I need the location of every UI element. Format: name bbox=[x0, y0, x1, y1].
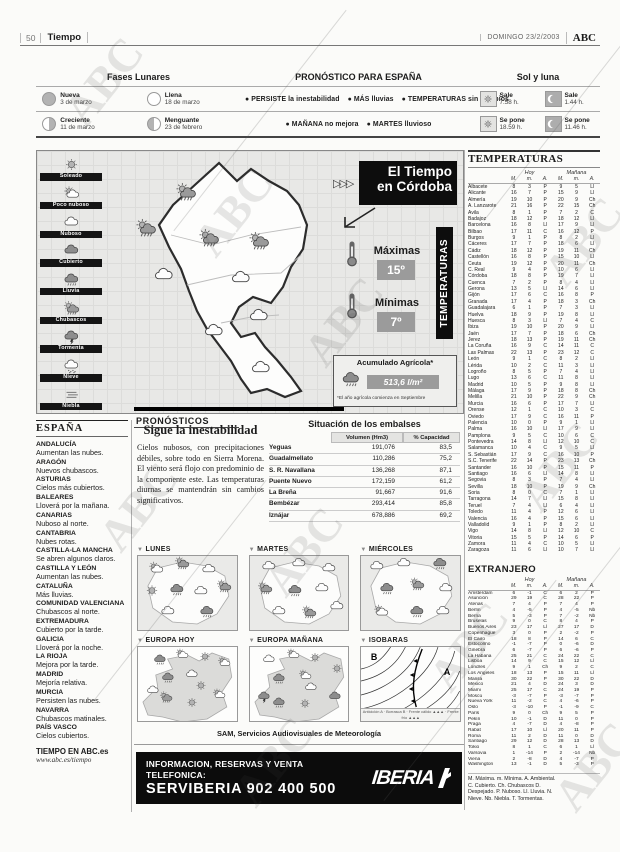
region-forecast: MURCIAPersisten las nubes. bbox=[36, 689, 128, 705]
map-title-line1: El Tiempo bbox=[364, 164, 452, 179]
mini-map: ▼ EUROPA MAÑANA bbox=[249, 637, 350, 722]
temp-row: Zaragoza116Ll107Ll bbox=[468, 547, 600, 553]
espana-title: ESPAÑA bbox=[36, 420, 128, 437]
acumulado-value: 513,6 l/m² bbox=[367, 375, 439, 389]
cloud-icon bbox=[201, 562, 217, 578]
weather-icon bbox=[291, 555, 307, 576]
weather-icon bbox=[257, 580, 273, 601]
m-new-icon bbox=[42, 92, 56, 106]
shower-icon bbox=[175, 182, 197, 204]
weather-legend: SoleadoPoco nubosoNubosoCubiertoLluviaCh… bbox=[40, 152, 102, 410]
region-forecast: CASTILLA-LA MANCHASe abren algunos claro… bbox=[36, 547, 128, 563]
mini-map-label: ▼ EUROPA MAÑANA bbox=[249, 637, 350, 644]
section-title: Tiempo bbox=[41, 32, 88, 43]
svg-text:A: A bbox=[444, 667, 451, 677]
sun-icon bbox=[482, 118, 494, 130]
sun-cloud-icon bbox=[148, 560, 164, 576]
ad-line1: INFORMACION, RESERVAS Y VENTA TELEFONICA… bbox=[146, 759, 362, 781]
espana-forecast-column: ESPAÑA ANDALUCÍAAumentan las nubes.ARAGÓ… bbox=[36, 420, 128, 764]
article-title: Sigue la inestabilidad bbox=[137, 424, 264, 437]
region-forecast: ARAGÓNNuevos chubascos. bbox=[36, 459, 128, 475]
region-forecast: GALICIALloverá por la noche. bbox=[36, 636, 128, 652]
weather-icon bbox=[153, 652, 167, 671]
foreign-temps-table: Amsterdam6-1C62PAsunción2919C2822PAtenas… bbox=[468, 591, 600, 768]
rain-icon bbox=[341, 369, 361, 389]
region-forecast: ANDALUCÍAAumentan las nubes. bbox=[36, 441, 128, 457]
weather-icon bbox=[185, 695, 199, 714]
embalse-row: Guadalmellato110,28675,2 bbox=[269, 454, 460, 465]
minimas-value: 7º bbox=[377, 312, 415, 332]
region-forecast: PAÍS VASCOCielos cubiertos. bbox=[36, 724, 128, 740]
cloud-icon bbox=[435, 603, 451, 619]
shower-icon bbox=[301, 605, 317, 621]
forecast-title: PRONÓSTICO PARA ESPAÑA bbox=[241, 72, 476, 82]
temperatures-column: TEMPERATURAS Hoy Mañana M.m.A.M.m.A. Alb… bbox=[468, 150, 600, 802]
moon-icon bbox=[545, 91, 562, 107]
weather-icon bbox=[298, 697, 312, 716]
iberia-logo: IBERIA bbox=[372, 767, 452, 790]
sun-icon bbox=[144, 583, 160, 599]
temperaturas-side-tab: TEMPERATURAS bbox=[436, 227, 453, 339]
cloud-icon bbox=[160, 603, 176, 619]
weather-icon bbox=[212, 688, 226, 707]
region-forecast: NAVARRAChubascos matinales. bbox=[36, 707, 128, 723]
moonset-icon bbox=[546, 117, 560, 131]
embalse-row: Puente Nuevo172,15961,2 bbox=[269, 477, 460, 488]
map-weather-icon bbox=[175, 182, 197, 209]
forecast-bullet: ● MÁS lluvias bbox=[348, 96, 394, 103]
map-weather-icon bbox=[135, 218, 157, 245]
cordoba-province-map bbox=[101, 155, 337, 405]
rain-icon bbox=[272, 695, 286, 709]
moon-phase: Creciente11 de marzo bbox=[42, 117, 130, 131]
mini-map-label: ▼ MIÉRCOLES bbox=[360, 546, 461, 553]
fog-icon bbox=[63, 386, 80, 403]
weather-icon bbox=[161, 670, 175, 689]
sun-cloud-icon bbox=[217, 655, 231, 669]
map-title-line2: en Córdoba bbox=[364, 179, 452, 194]
region-forecast: CATALUÑAMás lluvias. bbox=[36, 583, 128, 599]
moon-icon bbox=[545, 116, 562, 132]
weather-icon bbox=[216, 578, 232, 599]
legend-line: M. Máxima. m. Mínima. A. Ambiental. bbox=[468, 776, 600, 783]
map-weather-icon bbox=[153, 265, 175, 292]
region-forecast: EXTREMADURACubierto por la tarde. bbox=[36, 618, 128, 634]
weather-icon bbox=[193, 584, 209, 605]
sun-icon bbox=[482, 93, 494, 105]
weather-icon bbox=[262, 652, 276, 671]
forecast-bullet: ● PERSISTE la inestabilidad bbox=[245, 96, 340, 103]
weather-icon bbox=[308, 651, 322, 670]
embalses-header: Volumen (Hm3) % Capacidad bbox=[269, 432, 460, 443]
weather-icon bbox=[272, 672, 286, 691]
shower-icon bbox=[198, 228, 220, 250]
weather-icon bbox=[328, 689, 342, 708]
region-forecast: BALEARESLloverá por la mañana. bbox=[36, 494, 128, 510]
weather-icon bbox=[379, 580, 395, 601]
mini-map-canvas bbox=[137, 646, 238, 722]
acumulado-title: Acumulado Agrícola* bbox=[337, 358, 453, 367]
cloud-dark-icon bbox=[63, 242, 80, 259]
legend-line: Nieve. Nb. Niebla. T. Tormentas. bbox=[468, 796, 600, 803]
weather-icon bbox=[261, 558, 277, 579]
shower-icon bbox=[174, 556, 190, 572]
rain-icon bbox=[169, 581, 185, 597]
map-weather-icon bbox=[250, 358, 272, 385]
mini-map: ▼ MARTES bbox=[249, 546, 350, 631]
cloud-icon bbox=[396, 555, 412, 571]
weather-icon bbox=[217, 655, 231, 674]
legend-item: Nuboso bbox=[40, 209, 102, 238]
map-weather-icon bbox=[230, 268, 252, 295]
snow-icon bbox=[63, 357, 80, 374]
page-number: 50 bbox=[20, 33, 41, 43]
sun-icon bbox=[298, 697, 312, 711]
sun-icon bbox=[194, 679, 208, 693]
sun-icon bbox=[198, 649, 212, 663]
sun-moon-entry: Sale1.44 h. bbox=[545, 91, 597, 107]
mini-map-canvas bbox=[360, 555, 461, 631]
national-temps-table: Albacete83P95LlAlicante167P159LlAlmería1… bbox=[468, 184, 600, 554]
isobars-label: ▼ ISOBARAS bbox=[360, 637, 461, 644]
lunar-title: Fases Lunares bbox=[36, 72, 241, 82]
three-day-maps: ▼ LUNES▼ MARTES▼ MIÉRCOLES bbox=[137, 546, 461, 631]
map-weather-icon bbox=[198, 228, 220, 255]
embalses-title: Situación de los embalses bbox=[269, 419, 460, 429]
region-forecast: ASTURIASCielos más cubiertos. bbox=[36, 476, 128, 492]
sun-cloud-icon bbox=[373, 603, 389, 619]
cloud-icon bbox=[193, 584, 209, 600]
web-title: TIEMPO EN ABC.es bbox=[36, 747, 128, 756]
m-first-icon bbox=[42, 117, 56, 131]
embalse-row: S. R. Navallana136,26887,1 bbox=[269, 466, 460, 477]
rain-icon bbox=[199, 603, 215, 619]
weather-icon bbox=[201, 562, 217, 583]
mini-map: ▼ EUROPA HOY bbox=[137, 637, 238, 722]
sun-cloud-icon bbox=[212, 688, 226, 702]
legend-item: Niebla bbox=[40, 382, 102, 411]
sun-cloud-icon bbox=[63, 185, 80, 202]
sun-moon-entry: Se pone18.59 h. bbox=[480, 116, 532, 132]
page-header: 50 Tiempo DOMINGO 23/2/2003 ABC bbox=[20, 30, 600, 46]
extranjero-title: EXTRANJERO bbox=[468, 564, 600, 575]
shower-icon bbox=[159, 691, 173, 705]
rain-icon bbox=[432, 556, 448, 572]
shower-icon bbox=[216, 578, 232, 594]
maximas-value: 15º bbox=[377, 260, 415, 280]
abc-web-reference: TIEMPO EN ABC.es www.abc.es/tiempo bbox=[36, 747, 128, 764]
moon-phase: Menguante23 de febrero bbox=[147, 117, 235, 131]
weather-icon bbox=[409, 603, 425, 624]
web-url: www.abc.es/tiempo bbox=[36, 756, 128, 764]
map-weather-icon bbox=[248, 306, 270, 333]
sun-icon bbox=[185, 695, 199, 709]
cloud-icon bbox=[291, 555, 307, 571]
cloud-icon bbox=[438, 580, 454, 596]
cloud-icon bbox=[153, 265, 175, 287]
forecast-bullet: ● MAÑANA no mejora bbox=[286, 121, 359, 128]
legend-item: Soleado bbox=[40, 152, 102, 181]
weather-icon bbox=[144, 583, 160, 604]
sun-icon bbox=[63, 156, 80, 173]
rain-icon bbox=[63, 271, 80, 288]
mini-map-label: ▼ LUNES bbox=[137, 546, 238, 553]
region-forecast: CANARIASNuboso al norte. bbox=[36, 512, 128, 528]
weather-icon bbox=[159, 691, 173, 710]
weather-icon bbox=[160, 603, 176, 624]
mini-map: ▼ MIÉRCOLES bbox=[360, 546, 461, 631]
m-full-icon bbox=[147, 92, 161, 106]
sun-icon bbox=[330, 661, 344, 675]
cordoba-weather-map-panel: SoleadoPoco nubosoNubosoCubiertoLluviaCh… bbox=[36, 150, 464, 414]
shower-icon bbox=[257, 580, 273, 596]
sunrise-icon bbox=[480, 91, 497, 107]
weather-icon bbox=[409, 577, 425, 598]
sun-moon-title: Sol y luna bbox=[476, 72, 600, 82]
shower-icon bbox=[248, 231, 270, 253]
cloud-icon bbox=[230, 268, 252, 290]
weather-icon bbox=[198, 649, 212, 668]
mini-map: ▼ LUNES bbox=[137, 546, 238, 631]
weather-icon bbox=[396, 555, 412, 576]
embalse-row: Bembézar293,41485,8 bbox=[269, 499, 460, 510]
weather-icon bbox=[286, 648, 300, 667]
weather-icon bbox=[169, 581, 185, 602]
weather-icon bbox=[271, 603, 287, 624]
rain-icon bbox=[341, 369, 361, 394]
legend-line: Despejado. P. Nuboso. Ll. Lluvia. N. bbox=[468, 789, 600, 796]
mini-map-label: ▼ MARTES bbox=[249, 546, 350, 553]
weather-icon bbox=[287, 583, 303, 604]
sun-moon-entry: Se pone11.46 h. bbox=[545, 116, 597, 132]
cloud-icon bbox=[250, 358, 272, 380]
maximas-label: Máximas bbox=[355, 245, 439, 257]
map-weather-icon bbox=[248, 231, 270, 258]
minimas-label: Mínimas bbox=[355, 297, 439, 309]
cloud-icon bbox=[369, 558, 385, 574]
mini-map-canvas bbox=[249, 646, 350, 722]
legend-item: Tormenta bbox=[40, 324, 102, 353]
weather-icon bbox=[314, 580, 330, 601]
pointer-arrow-icon bbox=[337, 205, 379, 231]
cloud-icon bbox=[261, 558, 277, 574]
rain-icon bbox=[287, 583, 303, 599]
acumulado-footnote: *El año agrícola comienza en Septiembre bbox=[337, 396, 453, 401]
legend-item: Poco nuboso bbox=[40, 181, 102, 210]
article-body: Cielos nubosos, con precipitaciones débi… bbox=[137, 443, 264, 507]
forecast-article: Sigue la inestabilidad Cielos nubosos, c… bbox=[137, 424, 264, 507]
moon-phase: Llena18 de marzo bbox=[147, 92, 235, 106]
embalse-row: Yeguas191,07683,5 bbox=[269, 443, 460, 454]
embalses-col-capacidad: % Capacidad bbox=[403, 432, 460, 443]
moonset-icon bbox=[546, 92, 560, 106]
forecast-bullet: ● MARTES lluvioso bbox=[367, 121, 432, 128]
forecast-bullets-1: ● PERSISTE la inestabilidad● MÁS lluvias… bbox=[241, 96, 476, 103]
iberia-ad-banner: INFORMACION, RESERVAS Y VENTA TELEFONICA… bbox=[136, 752, 462, 804]
region-forecast: MADRIDMejoría relativa. bbox=[36, 671, 128, 687]
cloud-icon bbox=[329, 599, 345, 615]
shower-icon bbox=[135, 218, 157, 240]
iberia-wing-icon bbox=[436, 768, 452, 788]
legend-line: C. Cubierto. Ch. Chubascos D. bbox=[468, 783, 600, 790]
mini-map-canvas bbox=[249, 555, 350, 631]
sun-cloud-icon bbox=[175, 647, 189, 661]
mini-map-canvas bbox=[137, 555, 238, 631]
weather-icon bbox=[272, 695, 286, 714]
cloud-dark-icon bbox=[328, 689, 342, 703]
weather-icon bbox=[329, 599, 345, 620]
region-forecast: CASTILLA Y LEÓNAumentan las nubes. bbox=[36, 565, 128, 581]
weather-icon bbox=[199, 603, 215, 624]
cloud-icon bbox=[63, 214, 80, 231]
triple-arrow-icon: ▷▷▷ bbox=[333, 177, 359, 190]
weather-icon bbox=[175, 647, 189, 666]
shower-icon bbox=[409, 577, 425, 593]
cloud-icon bbox=[262, 652, 276, 666]
forecast-bullets-2: ● MAÑANA no mejora● MARTES lluvioso bbox=[241, 121, 476, 128]
weather-icon bbox=[257, 689, 271, 708]
rain-icon bbox=[379, 580, 395, 596]
europe-maps: ▼ EUROPA HOY▼ EUROPA MAÑANA▼ ISOBARAS B … bbox=[137, 637, 461, 722]
band-row-1: Nueva3 de marzo Llena18 de marzo ● PERSI… bbox=[36, 86, 600, 111]
legend-item: Chubascos bbox=[40, 295, 102, 324]
map-weather-icon bbox=[203, 321, 225, 348]
cloud-icon bbox=[248, 306, 270, 328]
weather-icon bbox=[321, 560, 337, 581]
map-title-banner: ▷▷▷ El Tiempo en Córdoba bbox=[333, 161, 457, 205]
cloud-icon bbox=[314, 580, 330, 596]
rain-icon bbox=[153, 652, 167, 666]
cloud-icon bbox=[271, 603, 287, 619]
weather-icon bbox=[148, 560, 164, 581]
weather-icon bbox=[301, 605, 317, 626]
cloud-icon bbox=[203, 321, 225, 343]
acumulado-agricola-box: Acumulado Agrícola* 513,6 l/m² *El año a… bbox=[333, 355, 457, 407]
nat-col-labels: M.m.A.M.m.A. bbox=[468, 176, 600, 184]
isobars-map: ▼ ISOBARAS B A Anticiclón A · Borrasca B… bbox=[360, 637, 461, 722]
top-band: Fases Lunares PRONÓSTICO PARA ESPAÑA Sol… bbox=[36, 72, 600, 138]
shower-icon bbox=[63, 300, 80, 317]
region-forecast: LA RIOJAMejora por la tarde. bbox=[36, 653, 128, 669]
page-date: DOMINGO 23/2/2003 bbox=[480, 34, 565, 41]
band-row-2: Creciente11 de marzo Menguante23 de febr… bbox=[36, 111, 600, 136]
abbreviation-legend: M. Máxima. m. Mínima. A. Ambiental.C. Cu… bbox=[468, 773, 600, 802]
ad-line2: SERVIBERIA 902 400 500 bbox=[146, 781, 362, 797]
sun-icon bbox=[308, 651, 322, 665]
weather-icon bbox=[432, 556, 448, 577]
rain-icon bbox=[409, 603, 425, 619]
reservoir-table: Situación de los embalses Volumen (Hm3) … bbox=[269, 419, 460, 522]
temp-row: Washington13-1D5-3P bbox=[468, 762, 600, 768]
weather-icon bbox=[435, 603, 451, 624]
m-last-icon bbox=[147, 117, 161, 131]
sunrise-icon bbox=[480, 116, 497, 132]
legend-item: Lluvia bbox=[40, 267, 102, 296]
weather-icon bbox=[369, 558, 385, 579]
cloud-icon bbox=[304, 680, 318, 694]
abc-masthead: ABC bbox=[566, 32, 600, 44]
meteo-credit: SAM, Servicios Audiovisuales de Meteorol… bbox=[137, 729, 461, 738]
cordoba-map-outline bbox=[101, 155, 337, 405]
embalses-col-volumen: Volumen (Hm3) bbox=[331, 432, 403, 443]
isobars-legend: Anticiclón A · Borrasca B · Frente cálid… bbox=[361, 708, 460, 721]
mini-map-label: ▼ EUROPA HOY bbox=[137, 637, 238, 644]
isobars-canvas: B A Anticiclón A · Borrasca B · Frente c… bbox=[360, 646, 461, 722]
for-col-labels: M.m.A.M.m.A. bbox=[468, 583, 600, 591]
weather-icon bbox=[174, 556, 190, 577]
svg-text:B: B bbox=[371, 652, 378, 662]
embalse-row: La Breña91,66791,6 bbox=[269, 488, 460, 499]
storm-icon bbox=[63, 328, 80, 345]
moon-phase: Nueva3 de marzo bbox=[42, 92, 130, 106]
legend-item: Cubierto bbox=[40, 238, 102, 267]
region-forecast: COMUNIDAD VALENCIANAChubascos al norte. bbox=[36, 600, 128, 616]
sun-moon-entry: Sale7.58 h. bbox=[480, 91, 532, 107]
storm-icon bbox=[257, 689, 271, 703]
embalse-row: Iznájar678,88669,2 bbox=[269, 511, 460, 522]
cloud-icon bbox=[321, 560, 337, 576]
sun-cloud-icon bbox=[286, 648, 300, 662]
rain-icon bbox=[161, 670, 175, 684]
temperaturas-title: TEMPERATURAS bbox=[468, 150, 600, 168]
weather-icon bbox=[373, 603, 389, 624]
rain-icon bbox=[272, 672, 286, 686]
legend-item: Nieve bbox=[40, 353, 102, 382]
region-forecast: CANTABRIANubes rotas. bbox=[36, 530, 128, 546]
weather-icon bbox=[330, 661, 344, 680]
weather-icon bbox=[438, 580, 454, 601]
